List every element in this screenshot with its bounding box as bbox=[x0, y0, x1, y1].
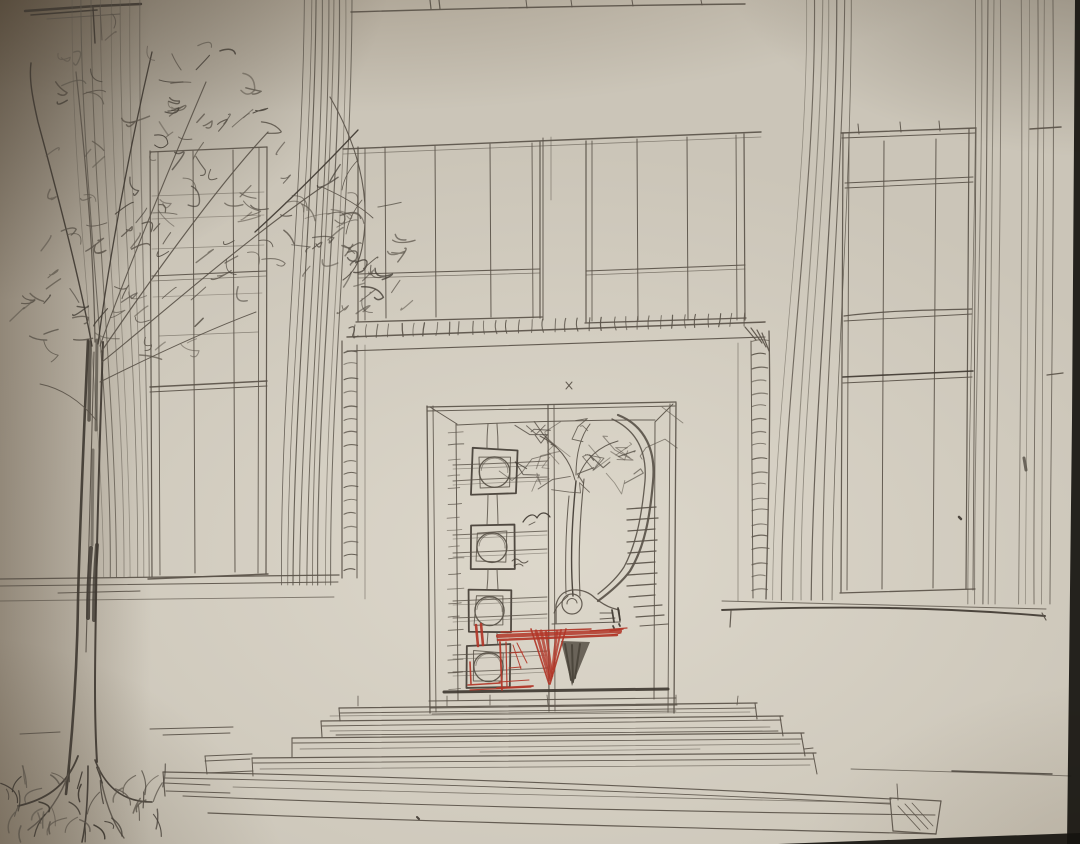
door-brick-surround bbox=[342, 313, 770, 601]
sketch-photo bbox=[0, 0, 1080, 844]
entrance-steps bbox=[20, 703, 1071, 834]
building-sketch-drawing bbox=[0, 0, 1080, 844]
window-grids bbox=[148, 121, 976, 593]
red-pen-annotations bbox=[468, 624, 627, 690]
